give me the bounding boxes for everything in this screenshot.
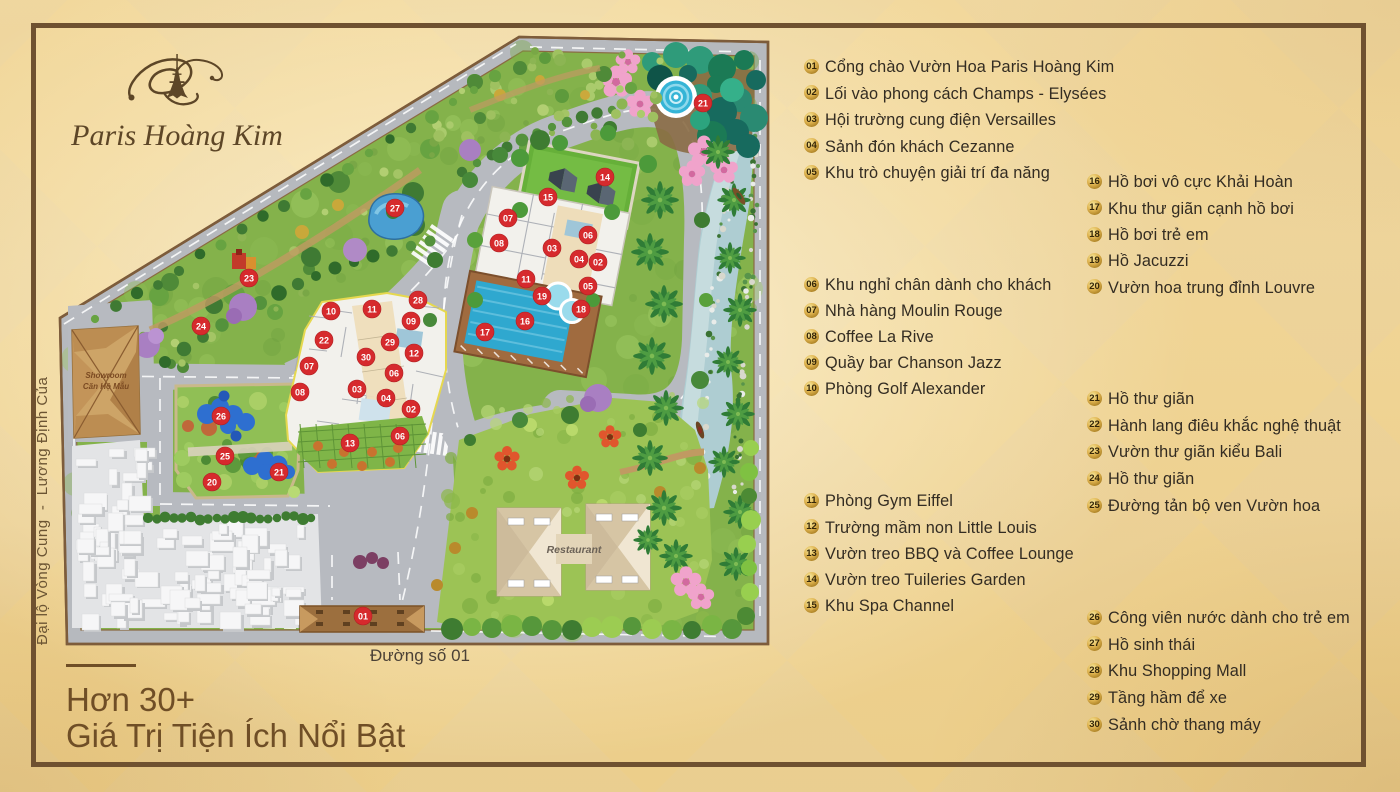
svg-text:17: 17 <box>480 327 490 337</box>
svg-text:07: 07 <box>304 361 314 371</box>
svg-text:21: 21 <box>698 98 708 108</box>
svg-text:10: 10 <box>326 306 336 316</box>
svg-text:15: 15 <box>543 192 553 202</box>
svg-text:12: 12 <box>409 348 419 358</box>
svg-text:27: 27 <box>390 203 400 213</box>
svg-text:13: 13 <box>345 438 355 448</box>
svg-text:29: 29 <box>385 337 395 347</box>
svg-text:07: 07 <box>503 213 513 223</box>
svg-text:11: 11 <box>521 274 531 284</box>
svg-text:28: 28 <box>413 295 423 305</box>
svg-text:03: 03 <box>352 384 362 394</box>
svg-text:02: 02 <box>406 404 416 414</box>
svg-text:06: 06 <box>583 230 593 240</box>
svg-text:24: 24 <box>196 321 206 331</box>
svg-text:Restaurant: Restaurant <box>547 544 602 556</box>
svg-text:09: 09 <box>406 316 416 326</box>
svg-text:21: 21 <box>274 467 284 477</box>
svg-text:06: 06 <box>395 431 405 441</box>
svg-text:30: 30 <box>361 352 371 362</box>
svg-text:11: 11 <box>367 304 377 314</box>
svg-text:22: 22 <box>319 335 329 345</box>
svg-text:19: 19 <box>537 291 547 301</box>
svg-text:20: 20 <box>207 477 217 487</box>
svg-text:01: 01 <box>358 611 368 621</box>
svg-text:Căn Hộ Mẫu: Căn Hộ Mẫu <box>83 382 129 391</box>
svg-text:04: 04 <box>381 393 391 403</box>
svg-text:08: 08 <box>494 238 504 248</box>
svg-text:05: 05 <box>583 281 593 291</box>
svg-text:Showroom: Showroom <box>85 371 126 380</box>
svg-text:23: 23 <box>244 273 254 283</box>
svg-text:08: 08 <box>295 387 305 397</box>
svg-text:25: 25 <box>220 451 230 461</box>
svg-text:14: 14 <box>600 172 610 182</box>
svg-text:26: 26 <box>216 411 226 421</box>
svg-text:16: 16 <box>520 316 530 326</box>
svg-text:04: 04 <box>574 254 584 264</box>
svg-text:18: 18 <box>576 304 586 314</box>
svg-text:03: 03 <box>547 243 557 253</box>
svg-text:02: 02 <box>593 257 603 267</box>
svg-text:06: 06 <box>389 368 399 378</box>
